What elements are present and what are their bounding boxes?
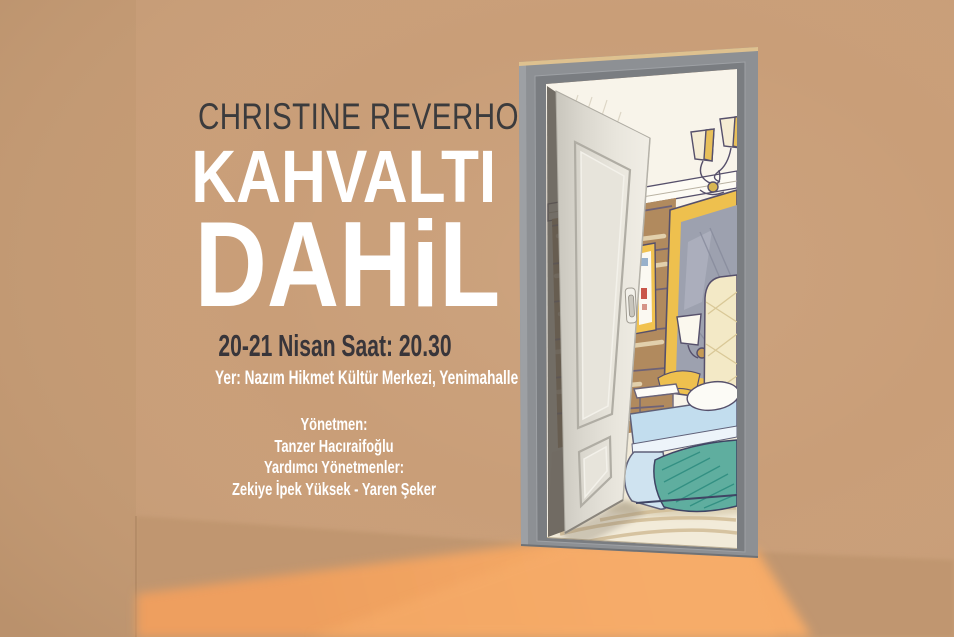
play-title-line2: DAHiL — [195, 216, 474, 314]
date-time: 20-21 Nisan Saat: 20.30 — [218, 330, 449, 363]
door-handle — [625, 288, 637, 323]
assistants-label: Yardımcı Yönetmenler: — [208, 457, 460, 479]
director-name: Tanzer Hacıraifoğlu — [208, 436, 460, 458]
director-label: Yönetmen: — [208, 414, 460, 436]
credits-block: Yönetmen: Tanzer Hacıraifoğlu Yardımcı Y… — [164, 414, 504, 500]
poster-text-column: CHRISTINE REVERHO KAHVALTI DAHiL 20-21 N… — [164, 97, 504, 500]
author-name: CHRISTINE REVERHO — [198, 97, 470, 138]
venue: Yer: Nazım Hikmet Kültür Merkezi, Yenima… — [215, 368, 453, 389]
bedroom-illustration — [540, 60, 755, 555]
poster: CHRISTINE REVERHO KAHVALTI DAHiL 20-21 N… — [0, 0, 954, 637]
assistants-names: Zekiye İpek Yüksek - Yaren Şeker — [208, 479, 460, 501]
